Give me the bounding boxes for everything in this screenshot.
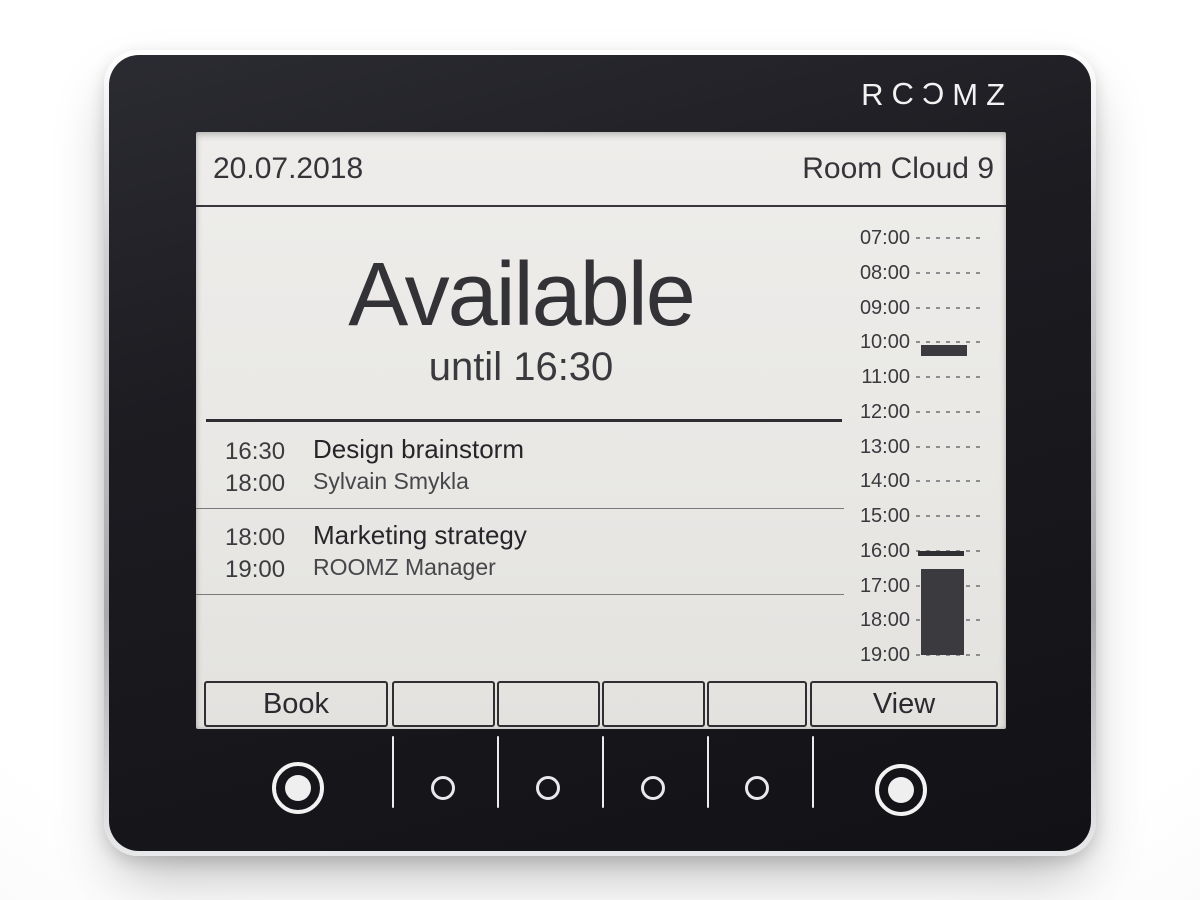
- view-softkey[interactable]: View: [810, 681, 998, 727]
- timeline-hour-row: 11:00: [846, 365, 988, 389]
- meeting-info: Marketing strategy ROOMZ Manager: [313, 515, 846, 594]
- busy-block-evening: [921, 569, 964, 655]
- hour-label: 16:00: [846, 540, 910, 563]
- meeting-end-time: 18:00: [225, 468, 313, 500]
- current-time-marker: [918, 551, 964, 556]
- book-softkey[interactable]: Book: [204, 681, 388, 727]
- softkey-blank-4: [707, 681, 807, 727]
- function-button-1[interactable]: [431, 776, 455, 800]
- softkey-blank-3: [602, 681, 705, 727]
- timeline-hour-row: 15:00: [846, 504, 988, 528]
- room-name-label: Room Cloud 9: [802, 152, 994, 186]
- meeting-times: 18:00 19:00: [225, 515, 313, 594]
- timeline-hour-row: 08:00: [846, 261, 988, 285]
- hour-dashed-line: [916, 515, 982, 517]
- timeline-hour-row: 18:00: [846, 608, 988, 632]
- meeting-start-time: 18:00: [225, 522, 313, 554]
- bezel-divider: [707, 736, 709, 808]
- softkey-blank-1: [392, 681, 495, 727]
- hour-label: 09:00: [846, 297, 910, 320]
- meeting-end-time: 19:00: [225, 554, 313, 586]
- logo-letter-m: M: [952, 79, 978, 110]
- hour-label: 18:00: [846, 609, 910, 632]
- meeting-times: 16:30 18:00: [225, 429, 313, 508]
- availability-state: Available: [196, 249, 846, 341]
- timeline-hour-row: 14:00: [846, 469, 988, 493]
- date-label: 20.07.2018: [213, 152, 363, 186]
- bezel-divider: [497, 736, 499, 808]
- filled-circle-icon: [888, 777, 914, 803]
- timeline-hour-row: 16:00: [846, 539, 988, 563]
- meeting-divider: [196, 508, 844, 509]
- meeting-title: Marketing strategy: [313, 519, 846, 552]
- view-physical-button[interactable]: [875, 764, 927, 816]
- busy-block-morning: [921, 345, 967, 356]
- roomz-display-device: R C C M Z 20.07.2018 Room Cloud 9 Availa…: [109, 55, 1091, 851]
- device-edge-rim: R C C M Z 20.07.2018 Room Cloud 9 Availa…: [104, 50, 1096, 856]
- hour-dashed-line: [916, 341, 982, 343]
- hour-label: 12:00: [846, 401, 910, 424]
- meeting-organizer: Sylvain Smykla: [313, 466, 846, 497]
- availability-until: until 16:30: [196, 343, 846, 391]
- softkey-blank-2: [497, 681, 600, 727]
- bezel-divider: [392, 736, 394, 808]
- meeting-info: Design brainstorm Sylvain Smykla: [313, 429, 846, 508]
- timeline-hour-row: 13:00: [846, 435, 988, 459]
- hour-dashed-line: [916, 480, 982, 482]
- meeting-row: 16:30 18:00 Design brainstorm Sylvain Sm…: [196, 429, 846, 508]
- logo-letter-z: Z: [986, 79, 1005, 110]
- logo-letter-o1-icon: C: [891, 78, 913, 109]
- logo-letter-r: R: [861, 79, 883, 110]
- roomz-logo: R C C M Z: [861, 77, 1005, 111]
- bezel-divider: [812, 736, 814, 808]
- screen-header: 20.07.2018 Room Cloud 9: [196, 132, 1006, 207]
- timeline-hour-row: 19:00: [846, 643, 988, 667]
- hour-dashed-line: [916, 307, 982, 309]
- timeline-hour-row: 12:00: [846, 400, 988, 424]
- hour-label: 10:00: [846, 331, 910, 354]
- hour-dashed-line: [916, 411, 982, 413]
- availability-status: Available until 16:30: [196, 209, 846, 391]
- hour-label: 07:00: [846, 227, 910, 250]
- eink-screen: 20.07.2018 Room Cloud 9 Available until …: [196, 132, 1006, 729]
- hour-label: 08:00: [846, 262, 910, 285]
- hour-label: 17:00: [846, 575, 910, 598]
- hour-label: 11:00: [846, 366, 910, 389]
- hour-label: 14:00: [846, 470, 910, 493]
- meeting-organizer: ROOMZ Manager: [313, 552, 846, 583]
- hour-dashed-line: [916, 446, 982, 448]
- hour-label: 19:00: [846, 644, 910, 667]
- status-divider: [206, 419, 842, 422]
- hour-dashed-line: [916, 237, 982, 239]
- meeting-title: Design brainstorm: [313, 433, 846, 466]
- meeting-start-time: 16:30: [225, 436, 313, 468]
- timeline-hour-row: 07:00: [846, 226, 988, 250]
- filled-circle-icon: [285, 775, 311, 801]
- bezel-divider: [602, 736, 604, 808]
- meeting-divider: [196, 594, 844, 595]
- hour-label: 15:00: [846, 505, 910, 528]
- day-timeline: 07:00 08:00 09:00 10:00 11:00 12:00 13:0…: [846, 207, 1004, 687]
- logo-letter-o2-icon: C: [922, 78, 944, 109]
- hour-label: 13:00: [846, 436, 910, 459]
- hour-dashed-line: [916, 272, 982, 274]
- timeline-hour-row: 09:00: [846, 296, 988, 320]
- hour-dashed-line: [916, 376, 982, 378]
- photo-background: R C C M Z 20.07.2018 Room Cloud 9 Availa…: [0, 0, 1200, 900]
- meeting-row: 18:00 19:00 Marketing strategy ROOMZ Man…: [196, 515, 846, 594]
- function-button-4[interactable]: [745, 776, 769, 800]
- function-button-2[interactable]: [536, 776, 560, 800]
- book-physical-button[interactable]: [272, 762, 324, 814]
- function-button-3[interactable]: [641, 776, 665, 800]
- timeline-hour-row: 17:00: [846, 574, 988, 598]
